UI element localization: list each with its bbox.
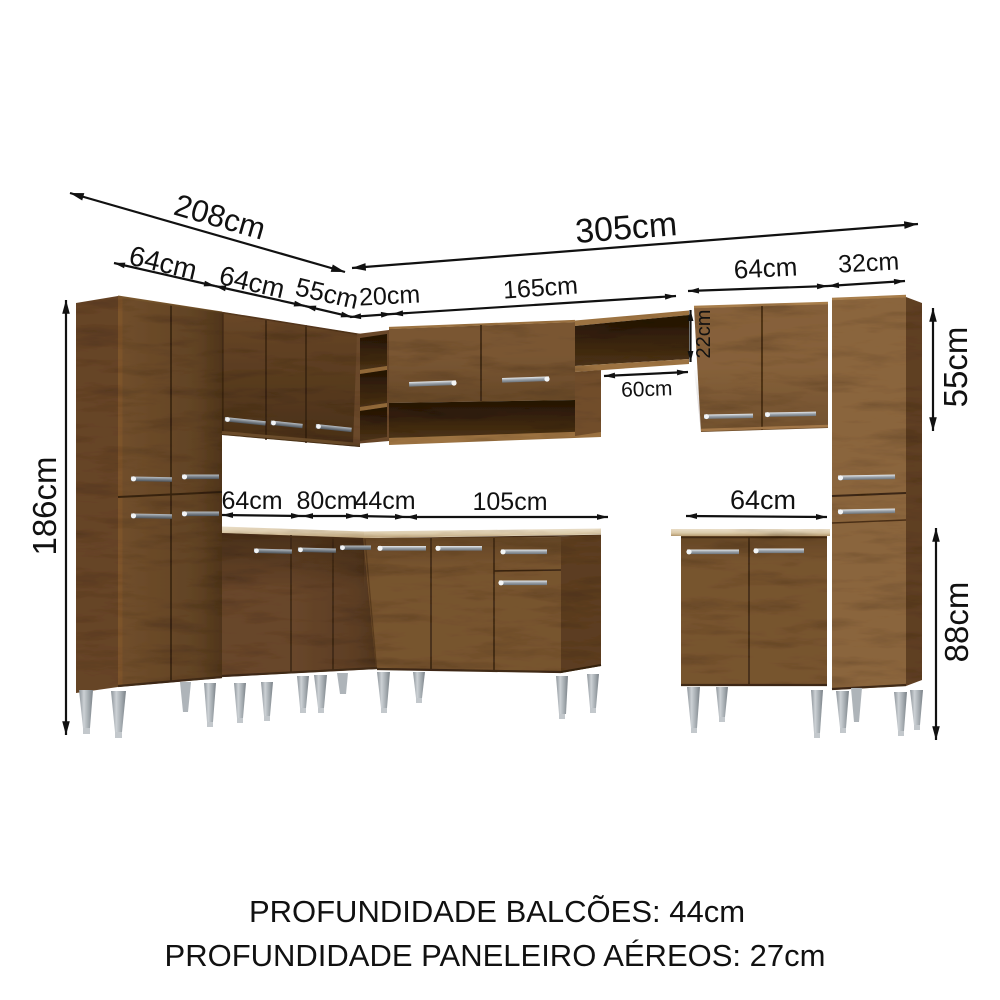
svg-text:64cm: 64cm (730, 485, 796, 515)
svg-text:165cm: 165cm (502, 271, 579, 304)
svg-text:64cm: 64cm (733, 251, 798, 284)
svg-text:305cm: 305cm (574, 205, 679, 251)
svg-text:PROFUNDIDADE PANELEIRO AÉREOS:: PROFUNDIDADE PANELEIRO AÉREOS: 27cm (165, 938, 826, 973)
svg-text:60cm: 60cm (621, 377, 673, 402)
svg-text:44cm: 44cm (354, 487, 415, 515)
svg-text:55cm: 55cm (937, 327, 974, 408)
svg-text:64cm: 64cm (221, 487, 282, 515)
svg-text:22cm: 22cm (693, 310, 715, 359)
svg-text:80cm: 80cm (296, 487, 357, 515)
svg-text:PROFUNDIDADE BALCÕES: 44cm: PROFUNDIDADE BALCÕES: 44cm (249, 894, 745, 929)
svg-text:105cm: 105cm (472, 488, 547, 516)
svg-text:32cm: 32cm (837, 247, 900, 278)
svg-text:186cm: 186cm (26, 456, 63, 555)
svg-text:20cm: 20cm (358, 280, 421, 311)
svg-text:88cm: 88cm (938, 582, 975, 663)
